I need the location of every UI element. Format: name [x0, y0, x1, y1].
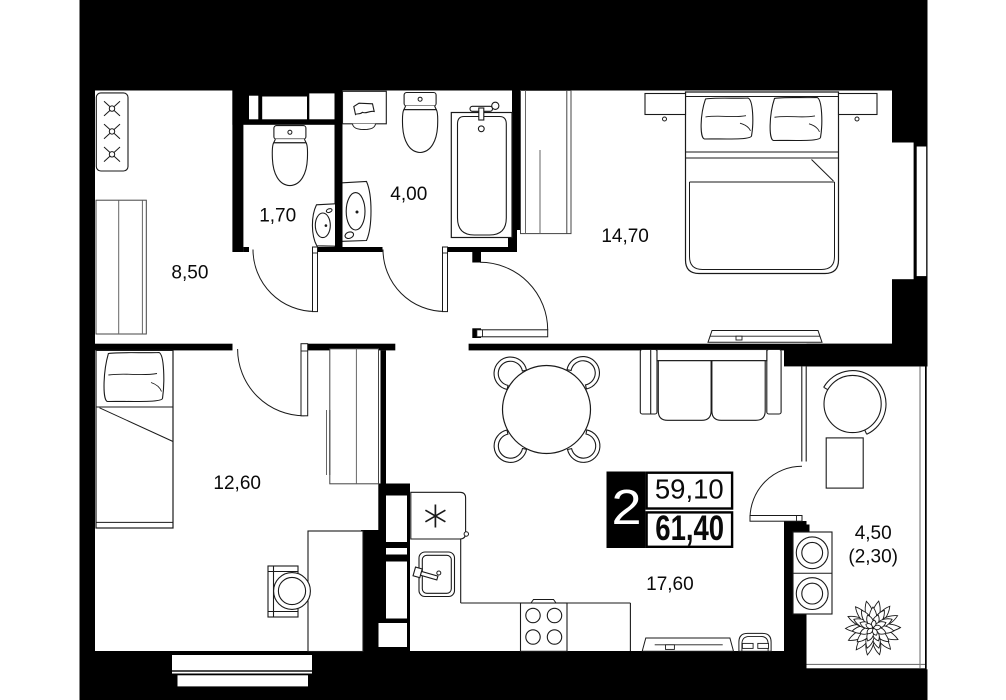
svg-text:8,50: 8,50: [171, 262, 208, 283]
svg-text:59,10: 59,10: [655, 474, 724, 505]
svg-text:12,60: 12,60: [213, 473, 261, 494]
svg-text:14,70: 14,70: [601, 226, 649, 247]
svg-text:4,00: 4,00: [390, 184, 427, 205]
svg-text:17,60: 17,60: [646, 574, 694, 595]
svg-text:61,40: 61,40: [655, 508, 724, 548]
svg-text:2: 2: [611, 479, 641, 534]
svg-text:1,70: 1,70: [259, 205, 296, 226]
svg-text:4,50: 4,50: [855, 523, 892, 544]
svg-text:(2,30): (2,30): [848, 546, 898, 567]
